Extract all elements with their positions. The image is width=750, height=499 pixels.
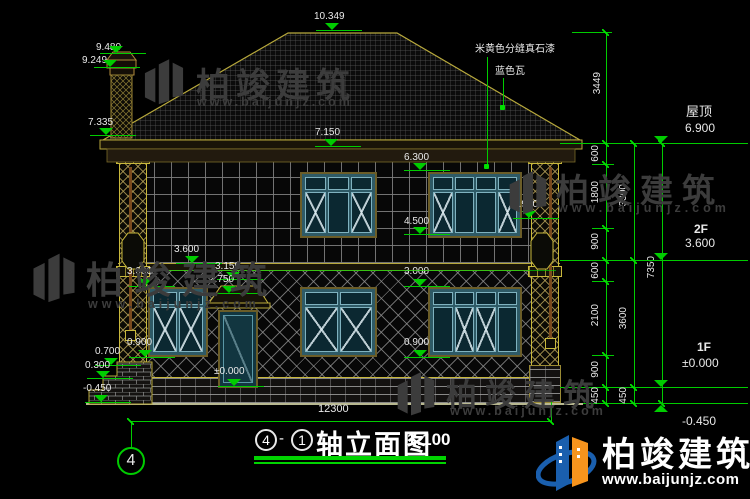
window-pane (433, 177, 453, 190)
roof-level-value: 6.900 (685, 123, 715, 134)
window-pane (476, 307, 496, 352)
leader-line (503, 78, 504, 108)
dim-grade-left: -0.450 (83, 383, 111, 394)
dim-tick (630, 140, 637, 147)
window-1f-right (428, 287, 522, 357)
window-pane (351, 177, 372, 190)
window-pane (476, 192, 496, 233)
window-pane (476, 177, 496, 190)
leader-line (487, 57, 488, 167)
title-axis-end-circle: 1 (291, 429, 313, 451)
level-marker (404, 227, 450, 235)
window-pane (498, 307, 518, 352)
brand-logo-url: www.baijunjz.com (602, 471, 739, 488)
dim-win1f-top-right: 3.000 (404, 266, 429, 277)
dim-tick (602, 140, 609, 147)
level-marker (218, 379, 264, 387)
dim-chain-line-inner (606, 32, 607, 403)
window-pane (179, 307, 203, 352)
dim-segment: 900 (590, 233, 601, 250)
dim-roof-height: 3449 (592, 72, 603, 94)
dim-overall-width: 12300 (318, 404, 349, 415)
watermark-url: www.baijunjz.com (450, 404, 606, 418)
dim-eave-left: 7.335 (88, 117, 113, 128)
level-marker (645, 136, 748, 144)
level-marker (645, 253, 748, 261)
watermark-url: www.baijunjz.com (558, 201, 730, 215)
roof-level-label: 屋顶 (686, 106, 712, 117)
dim-segment: 2100 (590, 304, 601, 326)
dim-tick (602, 225, 609, 232)
leader-arrow (500, 105, 505, 110)
dim-eave-mid: 7.150 (315, 127, 340, 138)
window-pane (340, 307, 373, 352)
chimney-neck (110, 68, 134, 75)
grade-level-value: -0.450 (682, 416, 716, 427)
watermark-url: www.baijunjz.com (88, 297, 260, 311)
window-1f-middle (300, 287, 377, 357)
level-marker (404, 350, 450, 358)
title-underline-thick (254, 456, 446, 460)
window-pane (455, 292, 475, 305)
leader-arrow (484, 164, 489, 169)
dim-tick (630, 400, 637, 407)
level-marker (316, 23, 362, 31)
dim-segment: 600 (590, 262, 601, 279)
window-pane (455, 177, 475, 190)
dim-win1f-sill-right: 0.900 (404, 337, 429, 348)
f1-level-value: ±0.000 (682, 358, 719, 369)
f2-level-label: 2F (694, 224, 708, 235)
stone-paint-label: 米黄色分缝真石漆 (475, 44, 555, 55)
brand-logo-name: 柏竣建筑 (602, 427, 750, 476)
dim-segment: 3600 (618, 307, 629, 329)
dim-door-floor: ±0.000 (214, 366, 245, 377)
window-pane (476, 292, 496, 305)
window-pane (498, 292, 518, 305)
title-axis-start-circle: 4 (255, 429, 277, 451)
level-marker (315, 139, 361, 147)
dim-tick (127, 418, 134, 425)
dim-tick (630, 257, 637, 264)
right-pilaster-octagon-ornament (531, 233, 553, 269)
dim-tick (602, 352, 609, 359)
axis-bubble-4: 4 (117, 447, 145, 475)
watermark-logo-icon (391, 365, 441, 419)
level-marker (90, 128, 136, 136)
dim-win2f-sill: 4.500 (404, 216, 429, 227)
dim-tick (602, 29, 609, 36)
window-pane (305, 177, 326, 190)
brand-logo-icon (536, 426, 600, 496)
dim-ridge: 10.349 (314, 11, 345, 22)
watermark-name: 柏竣建筑 (86, 250, 278, 304)
window-pane (455, 192, 475, 233)
title-underline-thin (254, 462, 446, 464)
level-marker (645, 403, 748, 411)
watermark-logo-icon (503, 164, 553, 218)
window-pane (433, 307, 453, 352)
blue-tile-label: 蓝色瓦 (495, 66, 525, 77)
level-marker (404, 279, 450, 287)
elevation-drawing-canvas: 米黄色分缝真石漆 蓝色瓦 10.349 9.480 9.249 7.335 7.… (0, 0, 750, 499)
dim-tick (547, 418, 554, 425)
window-pane (340, 292, 373, 305)
window-pane (305, 292, 338, 305)
level-marker (94, 60, 140, 68)
watermark-url: www.baijunjz.com (197, 95, 353, 109)
level-marker (645, 380, 748, 388)
window-pane (305, 307, 338, 352)
window-pane (328, 177, 349, 190)
window-pane (305, 192, 326, 233)
title-separator: - (279, 433, 284, 444)
dim-porch: 0.700 (95, 346, 120, 357)
window-pane (328, 192, 349, 233)
dim-segment: 450 (618, 387, 629, 404)
watermark-logo-icon (138, 52, 190, 108)
dim-tick (602, 257, 609, 264)
level-marker (87, 371, 133, 379)
level-marker (85, 395, 131, 403)
dim-step: 0.300 (85, 360, 110, 371)
extension-line (131, 421, 132, 448)
dim-win1f-sill-left: 0.900 (127, 337, 152, 348)
window-pane (351, 192, 372, 233)
window-pane (433, 292, 453, 305)
watermark-logo-icon (26, 246, 82, 306)
f2-level-value: 3.600 (685, 238, 715, 249)
cornice-band (107, 149, 575, 162)
overall-width-dim-line (131, 421, 551, 422)
window-pane (153, 307, 177, 352)
level-marker (129, 350, 175, 358)
dim-tick (602, 278, 609, 285)
level-marker (404, 163, 450, 171)
window-2f-left (300, 172, 377, 238)
f1-level-label: 1F (697, 342, 711, 353)
dim-tick (602, 384, 609, 391)
dim-win2f-top: 6.300 (404, 152, 429, 163)
drawing-scale: 1:100 (407, 430, 450, 450)
dim-tick (630, 384, 637, 391)
dim-segment: 600 (590, 145, 601, 162)
window-pane (455, 307, 475, 352)
